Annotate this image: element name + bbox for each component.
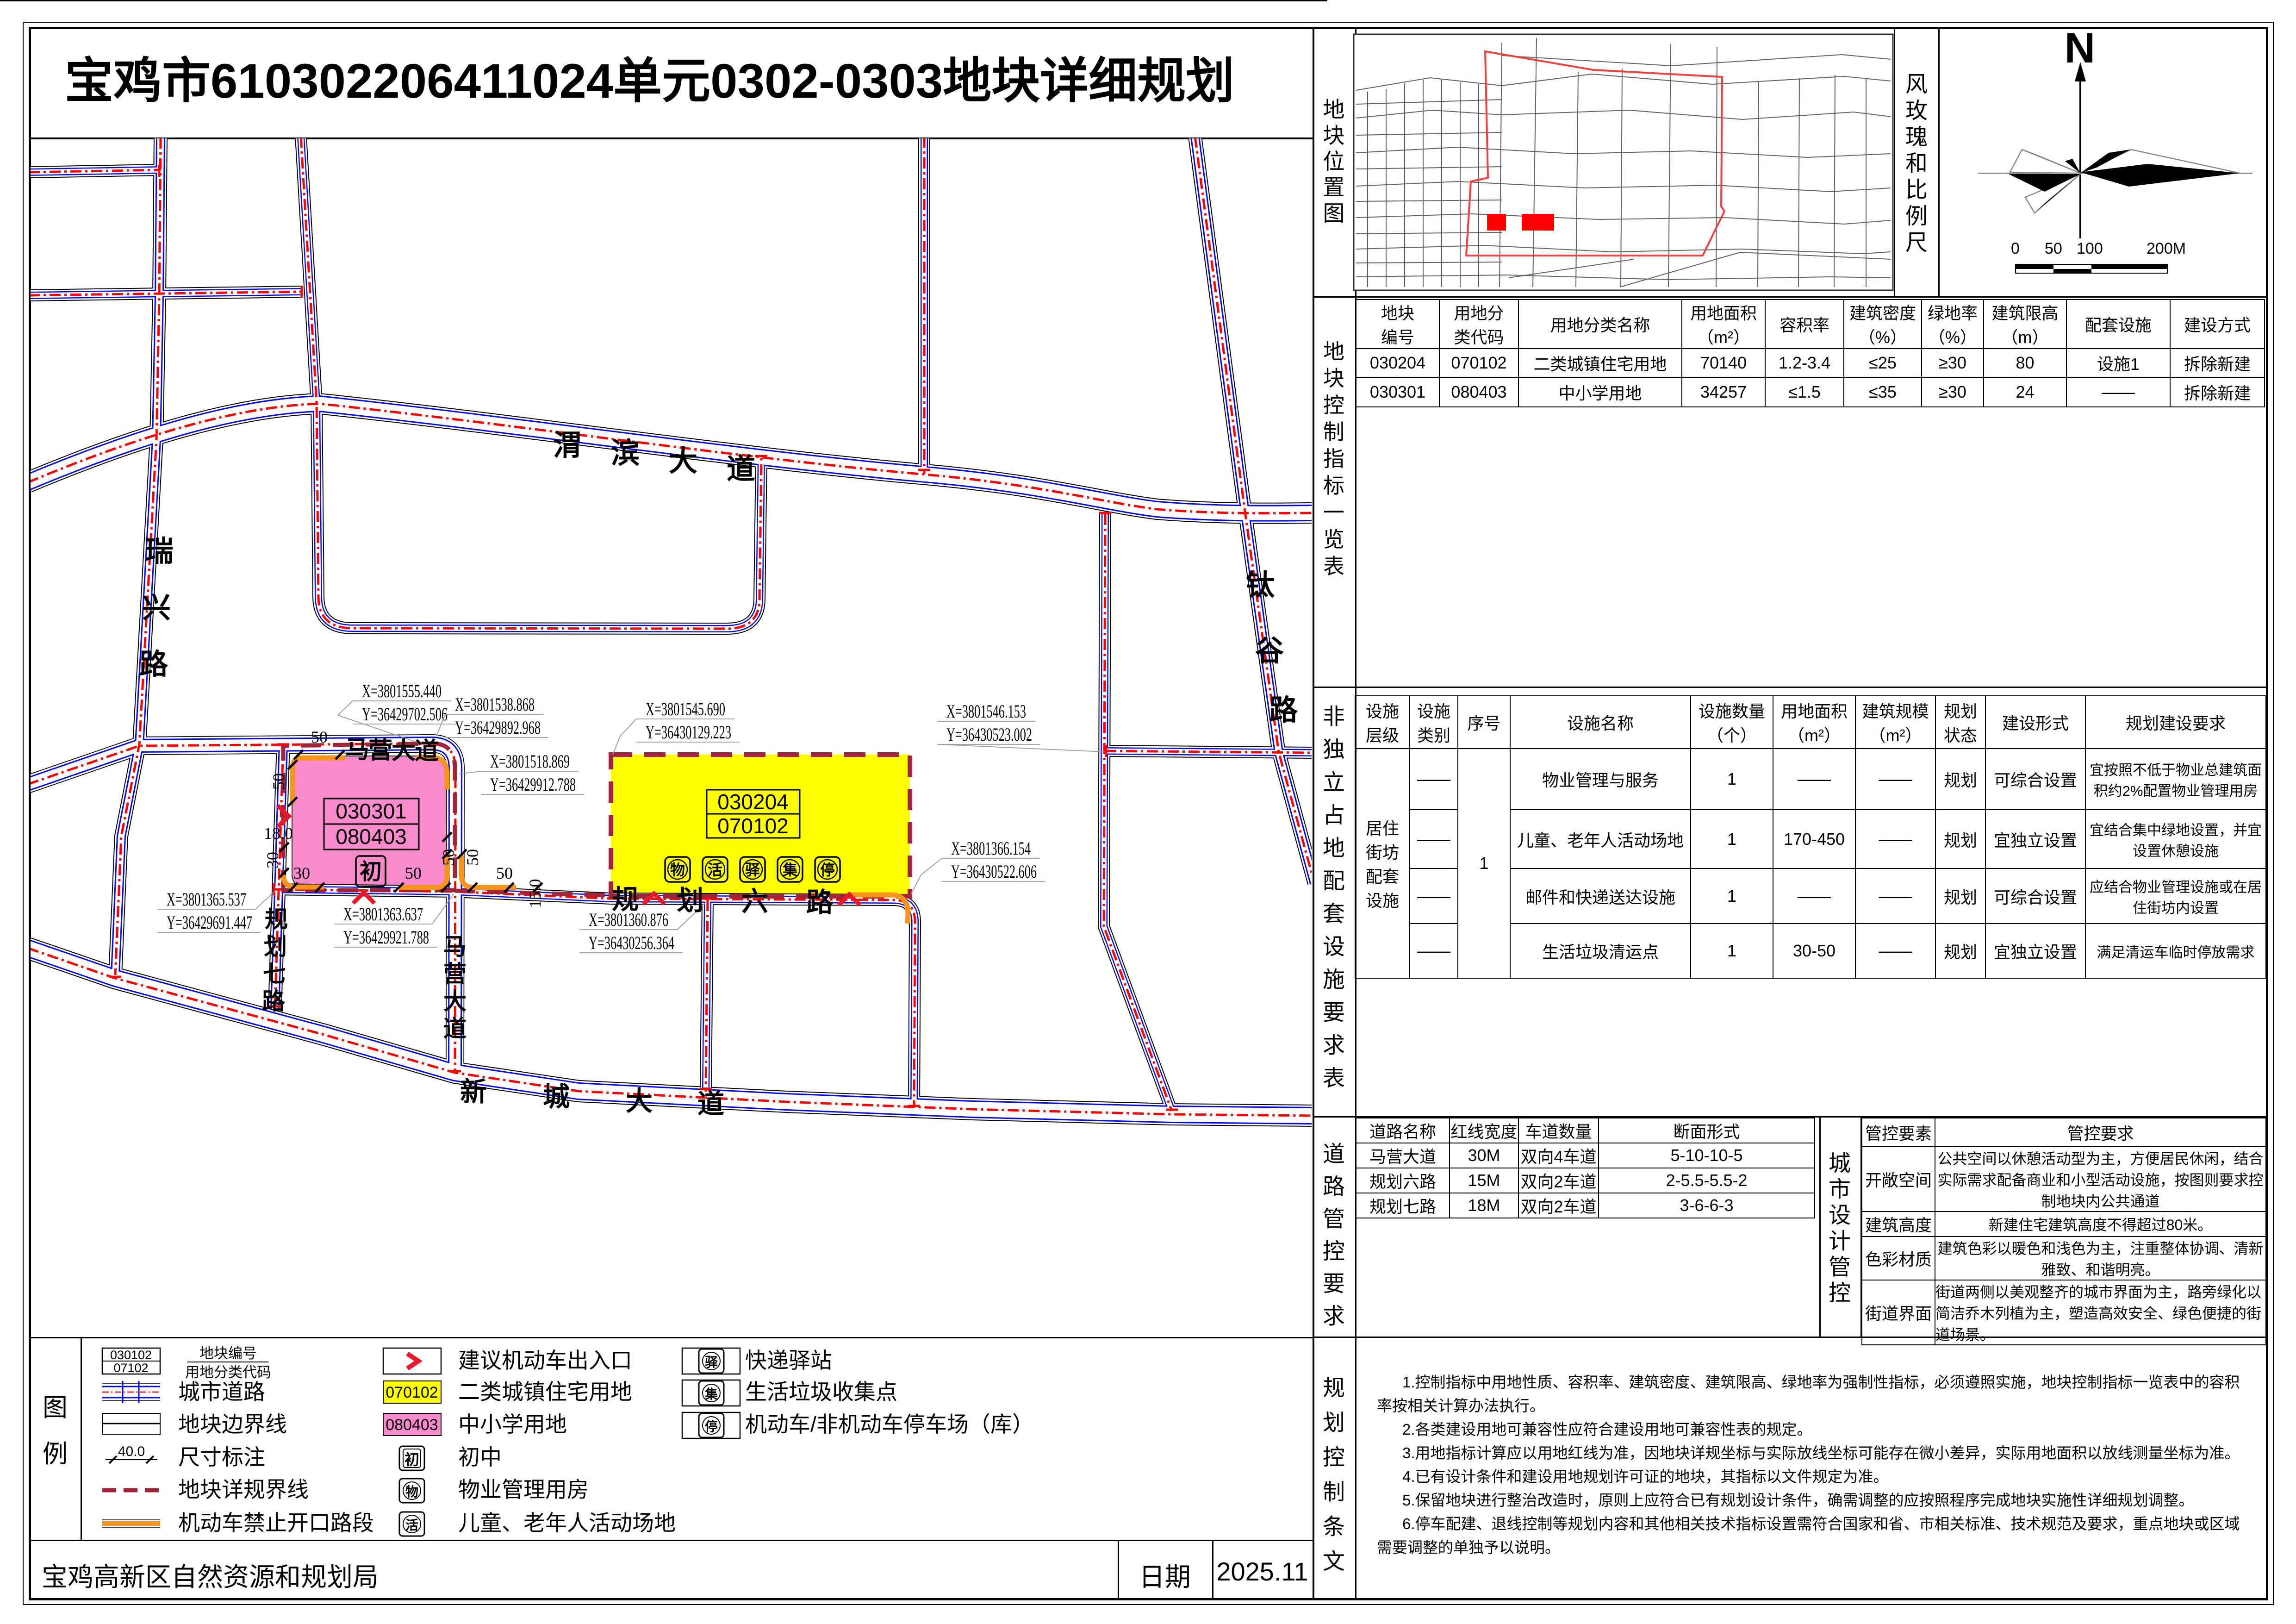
svg-text:40.0: 40.0 — [118, 1444, 145, 1459]
svg-text:用地分类代码: 用地分类代码 — [185, 1364, 271, 1380]
svg-text:15.0: 15.0 — [526, 879, 544, 908]
svg-text:城: 城 — [543, 1082, 570, 1112]
svg-text:渭: 渭 — [553, 430, 582, 462]
svg-text:道: 道 — [727, 453, 755, 485]
svg-text:18.0: 18.0 — [264, 824, 293, 843]
svg-text:大: 大 — [626, 1086, 653, 1116]
svg-text:Y=36430523.002: Y=36430523.002 — [946, 724, 1032, 745]
svg-text:道: 道 — [415, 738, 439, 765]
svg-text:Y=36430256.364: Y=36430256.364 — [589, 932, 674, 953]
svg-text:二类城镇住宅用地: 二类城镇住宅用地 — [458, 1380, 632, 1404]
svg-text:营: 营 — [443, 961, 467, 987]
svg-text:初中: 初中 — [458, 1445, 502, 1469]
svg-text:X=3801363.637: X=3801363.637 — [343, 904, 423, 924]
svg-text:大: 大 — [392, 737, 416, 764]
svg-text:路: 路 — [262, 988, 286, 1014]
svg-text:物: 物 — [670, 862, 685, 878]
svg-text:Y=36429912.788: Y=36429912.788 — [490, 774, 576, 795]
svg-text:驿: 驿 — [705, 1355, 718, 1369]
svg-text:Y=36430129.223: Y=36430129.223 — [646, 722, 731, 743]
svg-text:初: 初 — [360, 860, 382, 884]
svg-text:100: 100 — [2077, 240, 2103, 257]
svg-text:活: 活 — [708, 862, 722, 878]
svg-text:规: 规 — [612, 885, 639, 915]
svg-text:030204: 030204 — [717, 790, 789, 814]
svg-text:营: 营 — [368, 737, 392, 764]
svg-text:X=3801366.154: X=3801366.154 — [951, 838, 1031, 859]
svg-text:集: 集 — [704, 1387, 718, 1401]
svg-text:50: 50 — [269, 773, 288, 790]
svg-text:070102: 070102 — [386, 1384, 438, 1401]
svg-text:地块编号: 地块编号 — [199, 1345, 257, 1362]
svg-text:50: 50 — [2045, 240, 2062, 257]
svg-text:新: 新 — [460, 1077, 487, 1107]
svg-text:快递驿站: 快递驿站 — [745, 1348, 832, 1373]
svg-text:200M: 200M — [2147, 240, 2186, 257]
svg-text:大: 大 — [669, 445, 697, 477]
svg-text:50: 50 — [405, 864, 422, 882]
svg-text:中小学用地: 中小学用地 — [458, 1412, 567, 1437]
svg-text:活: 活 — [405, 1518, 418, 1532]
svg-text:X=3801545.690: X=3801545.690 — [646, 699, 725, 719]
svg-text:马: 马 — [443, 934, 467, 960]
svg-text:50: 50 — [496, 864, 513, 882]
svg-text:路: 路 — [139, 649, 168, 681]
svg-text:驿: 驿 — [745, 862, 760, 878]
svg-text:50: 50 — [311, 728, 328, 746]
svg-text:Y=36429702.506: Y=36429702.506 — [362, 704, 448, 725]
svg-text:30: 30 — [293, 864, 310, 882]
svg-text:路: 路 — [1269, 694, 1298, 726]
svg-text:道: 道 — [697, 1089, 724, 1119]
svg-text:30: 30 — [263, 852, 282, 868]
svg-text:Y=36430522.606: Y=36430522.606 — [951, 861, 1037, 882]
svg-text:大: 大 — [443, 988, 467, 1014]
svg-text:道: 道 — [443, 1016, 467, 1042]
svg-text:马: 马 — [345, 737, 369, 763]
svg-text:070102: 070102 — [717, 814, 789, 838]
svg-text:路: 路 — [806, 887, 834, 918]
svg-text:滨: 滨 — [611, 437, 640, 469]
svg-text:地块边界线: 地块边界线 — [178, 1412, 287, 1437]
svg-text:X=3801518.869: X=3801518.869 — [490, 751, 570, 772]
svg-text:停: 停 — [820, 862, 835, 878]
svg-text:建议机动车出入口: 建议机动车出入口 — [458, 1348, 632, 1373]
svg-text:X=3801546.153: X=3801546.153 — [946, 701, 1026, 722]
svg-text:初: 初 — [404, 1451, 419, 1468]
svg-text:城市道路: 城市道路 — [178, 1380, 265, 1404]
svg-text:机动车/非机动车停车场（库）: 机动车/非机动车停车场（库） — [745, 1412, 1034, 1437]
svg-text:瑞: 瑞 — [145, 536, 174, 568]
svg-text:Y=36429921.788: Y=36429921.788 — [343, 927, 429, 948]
svg-text:080403: 080403 — [386, 1416, 438, 1434]
svg-text:划: 划 — [264, 934, 287, 960]
svg-text:030102: 030102 — [110, 1348, 152, 1362]
svg-text:07102: 07102 — [113, 1361, 148, 1375]
svg-text:划: 划 — [677, 886, 703, 916]
svg-text:七: 七 — [263, 961, 286, 987]
svg-text:谷: 谷 — [1255, 635, 1284, 667]
svg-text:规: 规 — [265, 906, 288, 932]
svg-text:生活垃圾收集点: 生活垃圾收集点 — [745, 1380, 897, 1404]
svg-text:080403: 080403 — [336, 824, 407, 849]
svg-text:停: 停 — [705, 1419, 718, 1434]
svg-text:X=3801538.868: X=3801538.868 — [455, 694, 535, 715]
svg-text:六: 六 — [741, 887, 768, 917]
svg-text:兴: 兴 — [142, 592, 171, 624]
svg-text:Y=36429892.968: Y=36429892.968 — [455, 717, 541, 738]
svg-text:X=3801555.440: X=3801555.440 — [362, 681, 442, 701]
svg-text:尺寸标注: 尺寸标注 — [178, 1445, 265, 1469]
svg-text:机动车禁止开口路段: 机动车禁止开口路段 — [178, 1511, 374, 1535]
svg-text:0: 0 — [2011, 240, 2020, 257]
svg-text:Y=36429691.447: Y=36429691.447 — [167, 912, 252, 933]
svg-text:030301: 030301 — [336, 799, 407, 823]
svg-text:物业管理用房: 物业管理用房 — [458, 1477, 589, 1502]
svg-text:钛: 钛 — [1246, 569, 1275, 601]
svg-text:集: 集 — [782, 862, 797, 878]
svg-text:地块详规界线: 地块详规界线 — [178, 1477, 309, 1502]
svg-text:X=3801365.537: X=3801365.537 — [167, 889, 246, 910]
svg-text:50: 50 — [463, 849, 482, 866]
svg-text:儿童、老年人活动场地: 儿童、老年人活动场地 — [458, 1511, 676, 1535]
svg-text:物: 物 — [405, 1485, 418, 1499]
svg-text:50: 50 — [439, 849, 458, 866]
